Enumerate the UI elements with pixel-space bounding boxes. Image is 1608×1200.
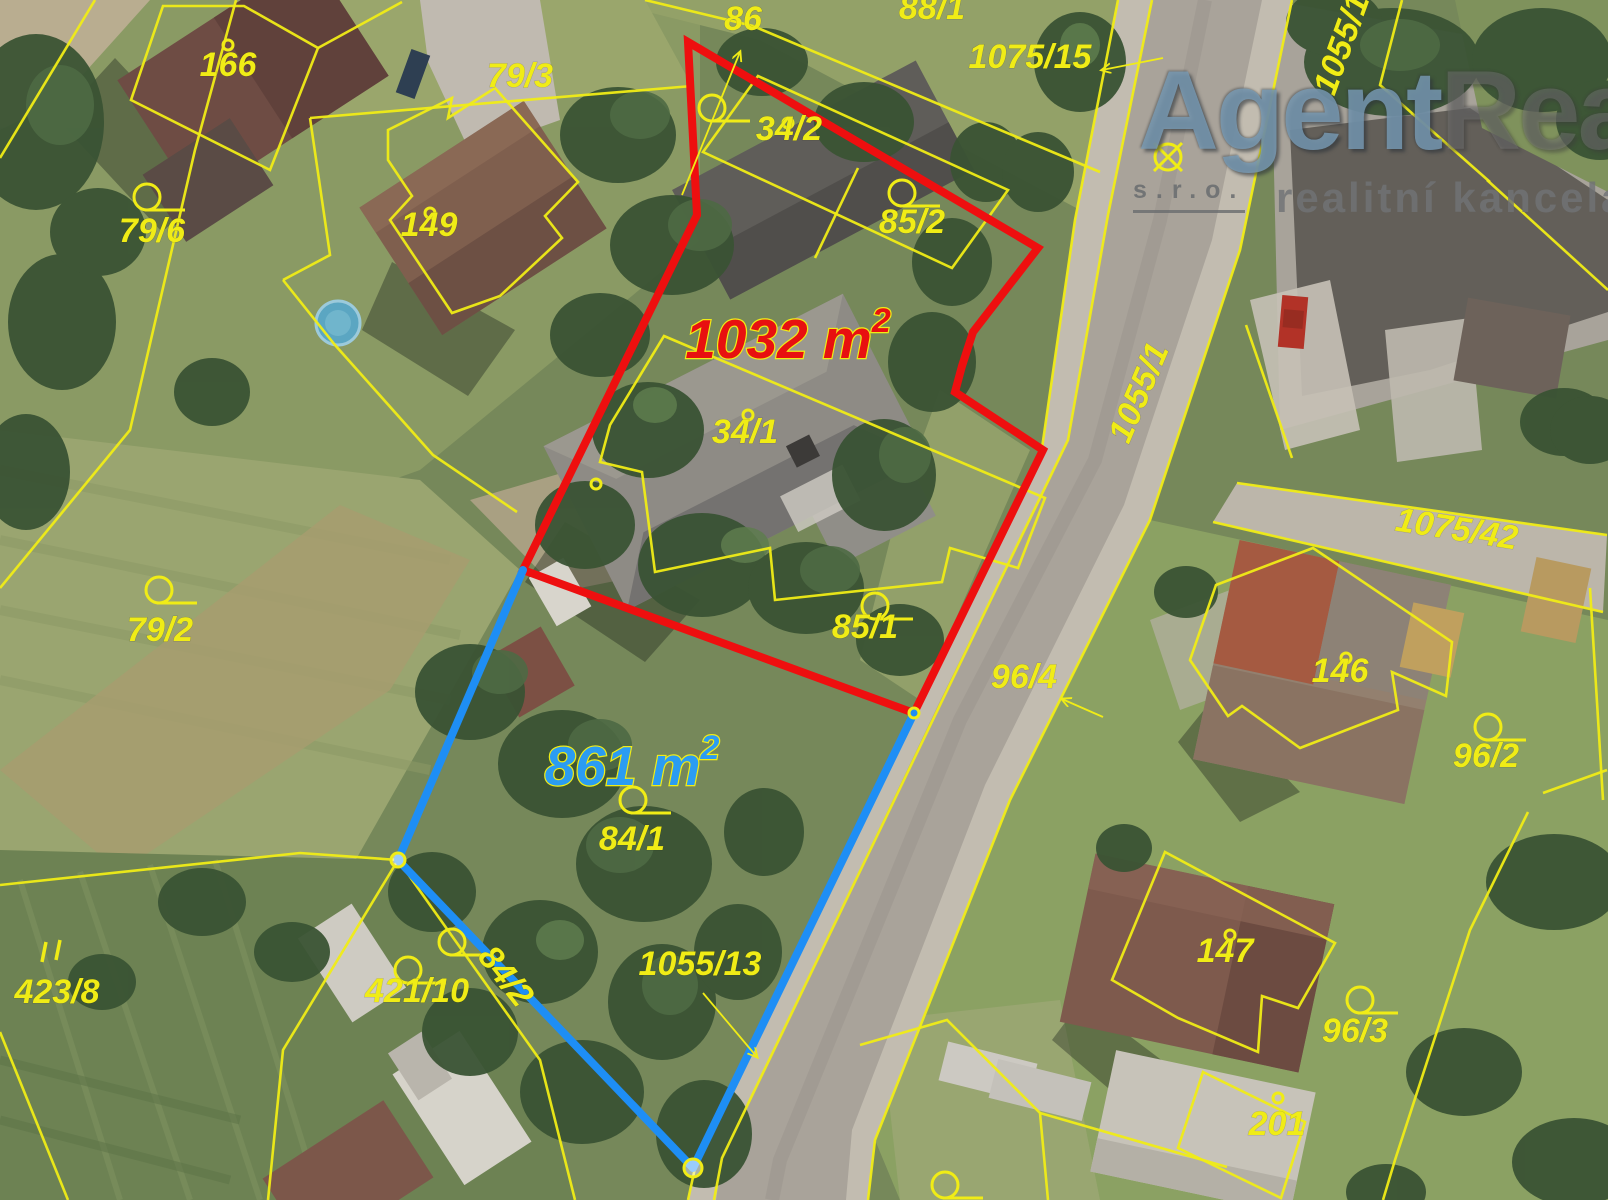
parcel-label-88-1: 88/1 bbox=[899, 0, 965, 27]
building-ne bbox=[1453, 298, 1570, 399]
parcel-label-423-8: 423/8 bbox=[13, 973, 99, 1011]
parcel-label-201: 201 bbox=[1248, 1105, 1306, 1143]
aerial-cadastral-map: 16679/38688/11075/1534/285/279/614934/11… bbox=[0, 0, 1608, 1200]
blue-vertex-south bbox=[684, 1159, 702, 1177]
parcel-label-85-1: 85/1 bbox=[832, 608, 898, 646]
parcel-label-86: 86 bbox=[724, 0, 763, 38]
parcel-label-84-1: 84/1 bbox=[599, 820, 665, 858]
parcel-label-147: 147 bbox=[1197, 932, 1256, 970]
parcel-label-1075-15: 1075/15 bbox=[969, 38, 1093, 76]
parcel-label-166: 166 bbox=[200, 46, 258, 84]
blue-vertex-west bbox=[391, 853, 405, 867]
parcel-label-149: 149 bbox=[401, 206, 458, 244]
parcel-label-421-10: 421/10 bbox=[364, 972, 469, 1010]
map-canvas: 16679/38688/11075/1534/285/279/614934/11… bbox=[0, 0, 1608, 1200]
parcel-label-96-3: 96/3 bbox=[1322, 1012, 1388, 1050]
car-red bbox=[1278, 295, 1308, 349]
parcel-label-34-2: 34/2 bbox=[756, 110, 822, 148]
parcel-label-96-4: 96/4 bbox=[991, 658, 1057, 696]
parcel-label-85-2: 85/2 bbox=[879, 203, 945, 241]
parcel-label-79-2: 79/2 bbox=[127, 611, 193, 649]
parcel-label-79-6: 79/6 bbox=[119, 212, 186, 250]
parcel-label-146: 146 bbox=[1312, 652, 1370, 690]
area-label-red: 1032 m2 bbox=[685, 302, 891, 370]
area-label-blue: 861 m2 bbox=[545, 729, 720, 797]
parcel-label-34-1: 34/1 bbox=[712, 413, 778, 451]
parcel-label-1055-13: 1055/13 bbox=[639, 945, 762, 983]
parcel-label-96-2: 96/2 bbox=[1453, 737, 1519, 775]
parcel-label-79-3: 79/3 bbox=[487, 57, 553, 95]
